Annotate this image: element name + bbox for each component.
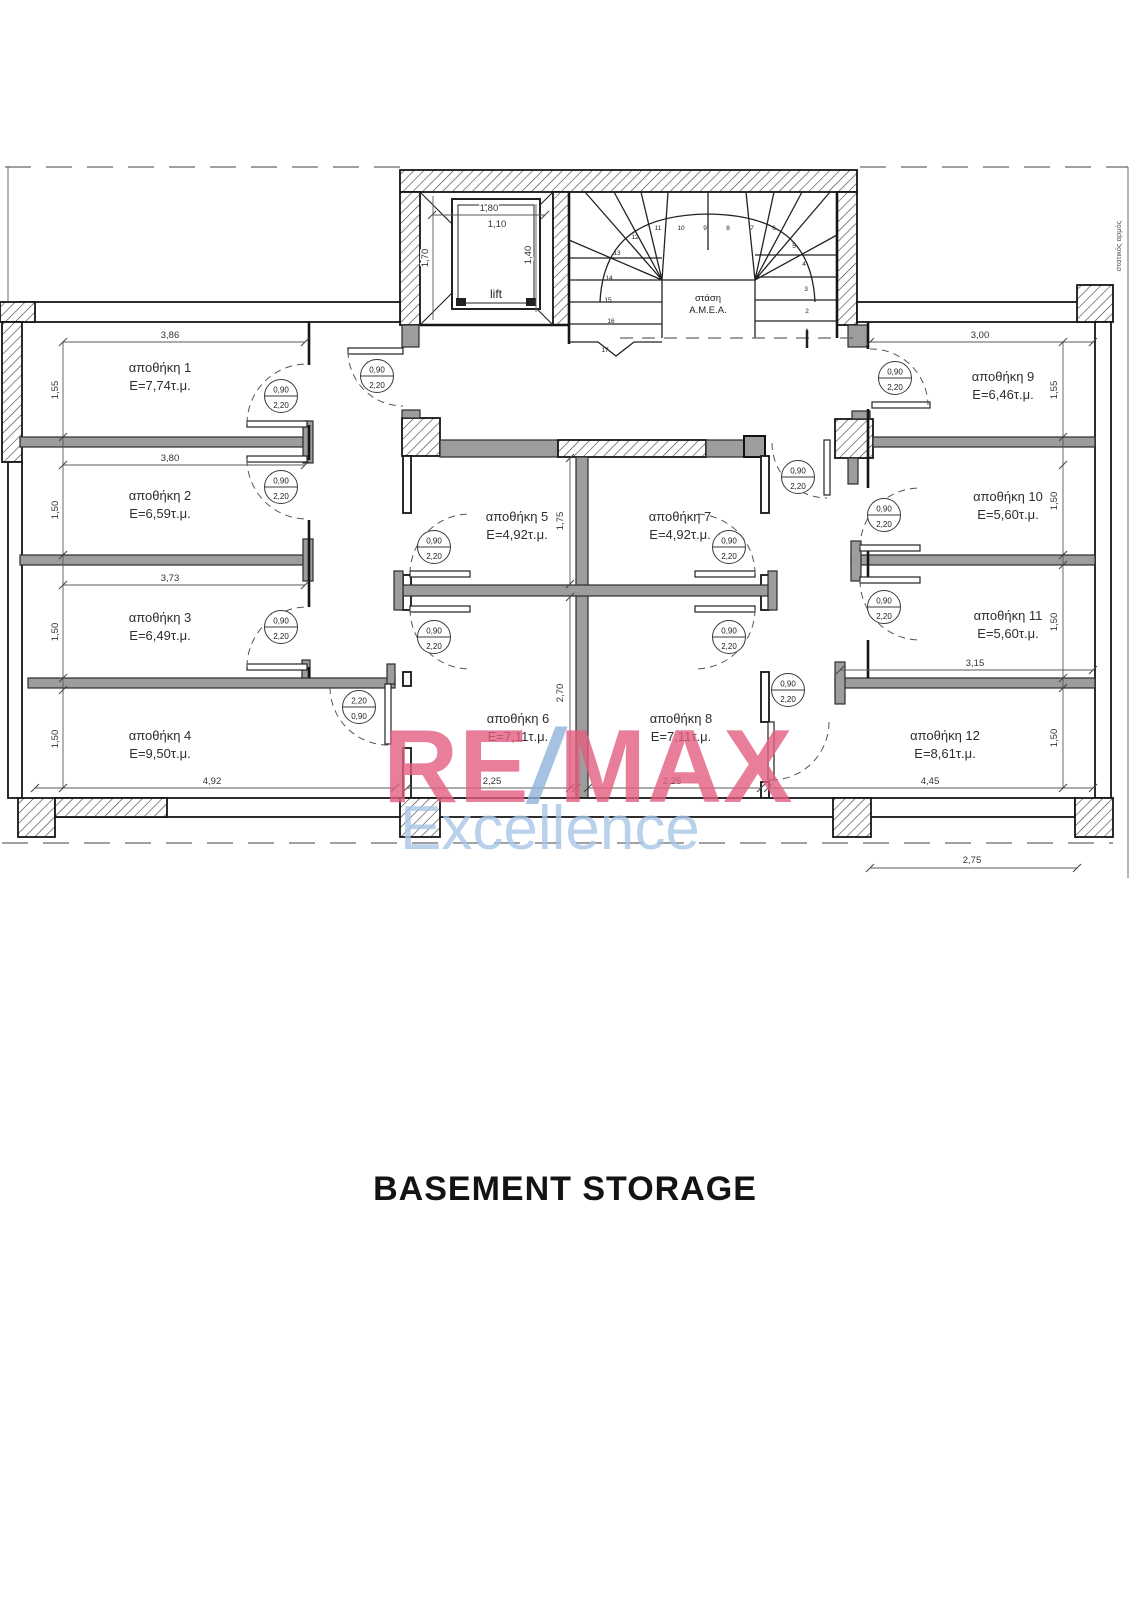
dim-room3-depth: 1,50 — [50, 623, 61, 642]
svg-text:0,90: 0,90 — [780, 680, 796, 689]
svg-text:5: 5 — [792, 243, 796, 250]
svg-text:13: 13 — [613, 250, 621, 257]
door-size-badge: 0,90 2,20 — [265, 471, 298, 504]
dim-room3-width: 3,73 — [161, 573, 180, 584]
svg-text:2,20: 2,20 — [426, 552, 442, 561]
room-11-area: E=5,60τ.μ. — [977, 626, 1038, 641]
svg-text:2,20: 2,20 — [351, 697, 367, 706]
door-size-badge: 0,90 2,20 — [782, 461, 815, 494]
svg-text:0,90: 0,90 — [273, 477, 289, 486]
svg-text:0,90: 0,90 — [426, 537, 442, 546]
dim-room11-depth: 1,50 — [1049, 613, 1060, 632]
room-3-area: E=6,49τ.μ. — [129, 628, 190, 643]
dim-room1-depth: 1,55 — [50, 381, 61, 400]
svg-text:0,90: 0,90 — [273, 386, 289, 395]
svg-text:0,90: 0,90 — [351, 712, 367, 721]
room-10-label: αποθήκη 10 — [973, 489, 1043, 504]
watermark-remax: RE/MAX Excellence — [383, 709, 794, 863]
svg-text:2,20: 2,20 — [273, 492, 289, 501]
right-wing-walls — [835, 285, 1113, 798]
svg-text:2,20: 2,20 — [273, 632, 289, 641]
plan-title: BASEMENT STORAGE — [373, 1170, 757, 1208]
dim-room12-width: 4,45 — [921, 776, 940, 787]
door-size-badge: 0,90 2,20 — [879, 362, 912, 395]
lift-dim-height-left: 1,70 — [420, 249, 431, 268]
svg-text:8: 8 — [726, 225, 730, 232]
lift-dim-width: 1,80 — [480, 203, 499, 214]
core-right-wall — [837, 192, 857, 325]
door-size-badge: 0,90 2,20 — [713, 531, 746, 564]
room-4-area: E=9,50τ.μ. — [129, 746, 190, 761]
core: 1,80 1,10 1,70 1,40 lift στάση Α.Μ.Ε.Α. … — [400, 170, 868, 356]
dim-room11-width: 3,15 — [966, 658, 985, 669]
svg-text:2,20: 2,20 — [426, 642, 442, 651]
svg-text:7: 7 — [750, 225, 754, 232]
svg-text:0,90: 0,90 — [426, 627, 442, 636]
door-size-badge: 0,90 2,20 — [868, 499, 901, 532]
svg-text:16: 16 — [607, 318, 615, 325]
svg-text:12: 12 — [631, 234, 639, 241]
room-4-label: αποθήκη 4 — [129, 728, 192, 743]
svg-text:2,20: 2,20 — [369, 381, 385, 390]
svg-text:4: 4 — [802, 261, 806, 268]
dim-room4-depth: 1,50 — [50, 730, 61, 749]
svg-text:14: 14 — [605, 275, 613, 282]
svg-text:3: 3 — [804, 286, 808, 293]
room-1-area: E=7,74τ.μ. — [129, 378, 190, 393]
door-size-badge: 0,90 2,20 — [418, 621, 451, 654]
svg-text:0,90: 0,90 — [887, 368, 903, 377]
lift-dim-height-right: 1,40 — [523, 246, 534, 265]
svg-text:0,90: 0,90 — [721, 627, 737, 636]
lift: 1,80 1,10 1,70 1,40 lift — [420, 192, 553, 325]
svg-text:2,20: 2,20 — [721, 642, 737, 651]
room-9-label: αποθήκη 9 — [972, 369, 1035, 384]
dim-offset-bottom: 2,75 — [963, 855, 982, 866]
core-left-wall — [400, 192, 420, 325]
dim-room2-width: 3,80 — [161, 453, 180, 464]
svg-text:0,90: 0,90 — [369, 366, 385, 375]
dim-room1-width: 3,86 — [161, 330, 180, 341]
watermark-excellence: Excellence — [400, 794, 700, 863]
stair-landing-label: στάση — [695, 293, 721, 304]
room-12-label: αποθήκη 12 — [910, 728, 980, 743]
room-5-area: E=4,92τ.μ. — [486, 527, 547, 542]
room-10-area: E=5,60τ.μ. — [977, 507, 1038, 522]
svg-text:2,20: 2,20 — [721, 552, 737, 561]
svg-text:9: 9 — [703, 225, 707, 232]
room-7-label: αποθήκη 7 — [649, 509, 712, 524]
door-size-badge-reversed: 2,20 0,90 — [343, 691, 376, 724]
svg-text:15: 15 — [604, 297, 612, 304]
stair-step-numbers: 1 2 3 4 5 6 7 8 9 10 11 12 13 14 15 16 1… — [601, 225, 809, 354]
door-size-badge: 0,90 2,20 — [361, 360, 394, 393]
svg-text:17: 17 — [601, 347, 609, 354]
room-12-area: E=8,61τ.μ. — [914, 746, 975, 761]
dim-room4-width: 4,92 — [203, 776, 222, 787]
floor-plan-page: στατικός αρμός 1,80 1,10 1,70 1,40 lift — [0, 0, 1131, 1600]
dim-spine-lower: 2,70 — [555, 684, 566, 703]
dim-room9-width: 3,00 — [971, 330, 990, 341]
center-cross-wall — [403, 585, 769, 596]
stair: στάση Α.Μ.Ε.Α. 1 2 3 4 5 6 7 8 9 10 11 1… — [569, 192, 857, 356]
svg-text:2,20: 2,20 — [790, 482, 806, 491]
dim-room12-depth: 1,50 — [1049, 729, 1060, 748]
door-size-badge: 0,90 2,20 — [868, 591, 901, 624]
dim-room9-depth: 1,55 — [1049, 381, 1060, 400]
svg-text:0,90: 0,90 — [876, 597, 892, 606]
svg-text:0,90: 0,90 — [876, 505, 892, 514]
svg-text:0,90: 0,90 — [790, 467, 806, 476]
dim-spine-upper: 1,75 — [555, 512, 566, 531]
site-note: στατικός αρμός — [1114, 220, 1123, 271]
svg-text:0,90: 0,90 — [721, 537, 737, 546]
svg-text:2,20: 2,20 — [780, 695, 796, 704]
room-2-area: E=6,59τ.μ. — [129, 506, 190, 521]
room-1-label: αποθήκη 1 — [129, 360, 192, 375]
stair-landing-label-2: Α.Μ.Ε.Α. — [689, 305, 726, 316]
svg-text:2,20: 2,20 — [887, 383, 903, 392]
svg-text:11: 11 — [655, 225, 662, 232]
svg-text:2,20: 2,20 — [273, 401, 289, 410]
lift-label: lift — [490, 287, 503, 301]
svg-text:10: 10 — [677, 225, 685, 232]
door-size-badge: 0,90 2,20 — [265, 611, 298, 644]
lift-dim-width-inner: 1,10 — [488, 219, 507, 230]
svg-text:1: 1 — [805, 328, 809, 335]
room-9-area: E=6,46τ.μ. — [972, 387, 1033, 402]
svg-text:0,90: 0,90 — [273, 617, 289, 626]
core-top-wall — [400, 170, 857, 192]
svg-text:2: 2 — [805, 308, 809, 315]
room-11-label: αποθήκη 11 — [974, 608, 1043, 623]
door-size-badge: 0,90 2,20 — [418, 531, 451, 564]
door-size-badge: 0,90 2,20 — [713, 621, 746, 654]
door-size-badge: 0,90 2,20 — [265, 380, 298, 413]
dim-room10-depth: 1,50 — [1049, 492, 1060, 511]
room-3-label: αποθήκη 3 — [129, 610, 192, 625]
svg-text:6: 6 — [772, 225, 776, 232]
room-5-label: αποθήκη 5 — [486, 509, 549, 524]
room-2-label: αποθήκη 2 — [129, 488, 192, 503]
svg-text:2,20: 2,20 — [876, 520, 892, 529]
lift-stair-divider-wall — [553, 192, 569, 325]
room-7-area: E=4,92τ.μ. — [649, 527, 710, 542]
floor-plan-drawing: στατικός αρμός 1,80 1,10 1,70 1,40 lift — [0, 0, 1131, 1600]
left-wing-walls — [0, 302, 400, 798]
svg-text:2,20: 2,20 — [876, 612, 892, 621]
door-size-badge: 0,90 2,20 — [772, 674, 805, 707]
dim-room2-depth: 1,50 — [50, 501, 61, 520]
